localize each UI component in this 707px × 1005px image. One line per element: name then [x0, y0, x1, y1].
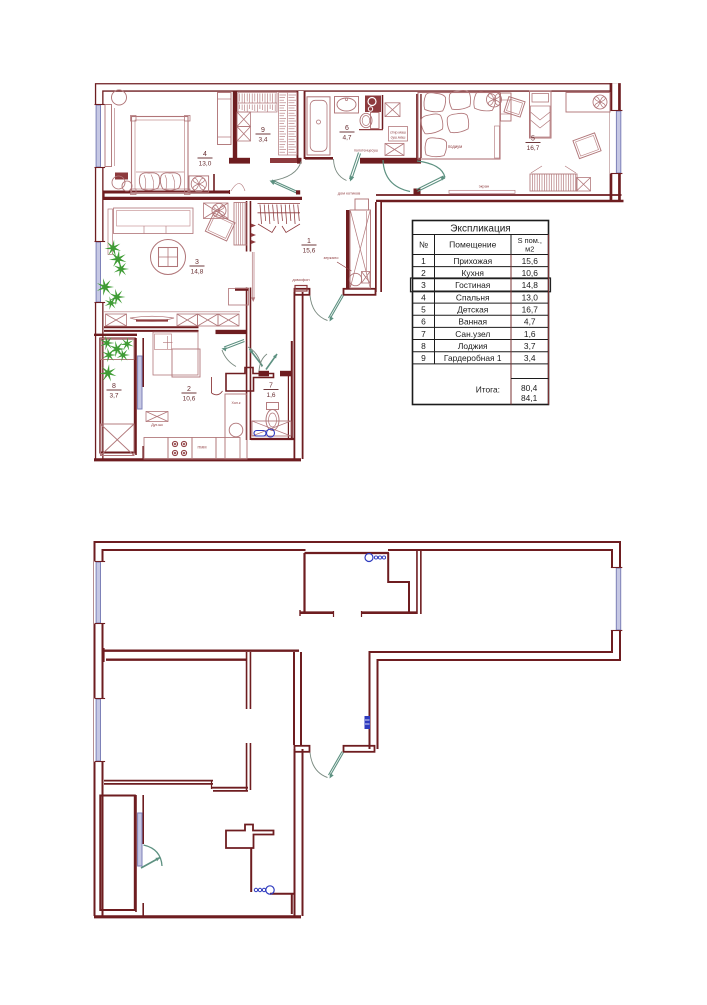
svg-text:Помещение: Помещение [449, 240, 496, 250]
svg-text:10,6: 10,6 [522, 268, 539, 278]
svg-text:10,6: 10,6 [183, 396, 196, 403]
svg-text:стир.маш: стир.маш [390, 130, 406, 134]
svg-text:8: 8 [421, 341, 426, 351]
svg-text:Гардеробная 1: Гардеробная 1 [444, 353, 502, 363]
svg-text:7: 7 [269, 383, 273, 390]
svg-text:1: 1 [421, 256, 426, 266]
svg-text:4: 4 [203, 151, 207, 158]
svg-text:№: № [419, 240, 428, 250]
svg-text:5: 5 [531, 136, 535, 143]
svg-text:80,4: 80,4 [521, 383, 538, 393]
svg-text:3,4: 3,4 [524, 353, 536, 363]
svg-text:84,1: 84,1 [521, 393, 538, 403]
svg-text:Прихожая: Прихожая [453, 256, 492, 266]
svg-text:3: 3 [421, 280, 426, 290]
svg-text:4,7: 4,7 [342, 135, 351, 142]
svg-text:Детская: Детская [457, 305, 488, 315]
svg-text:Лоджия: Лоджия [458, 341, 488, 351]
svg-text:16,7: 16,7 [527, 145, 540, 152]
svg-text:Гостиная: Гостиная [455, 280, 490, 290]
svg-text:Итога:: Итога: [476, 385, 500, 395]
svg-text:1: 1 [307, 238, 311, 245]
svg-text:4: 4 [421, 292, 426, 302]
svg-text:Экспликация: Экспликация [450, 223, 510, 234]
svg-text:Хол.к: Хол.к [232, 401, 241, 405]
svg-text:13,0: 13,0 [199, 161, 212, 168]
svg-text:дом котиков: дом котиков [338, 190, 361, 195]
svg-text:домофон: домофон [292, 277, 309, 282]
svg-text:2: 2 [421, 268, 426, 278]
svg-text:суш.маш: суш.маш [391, 136, 406, 140]
svg-text:полотенцесуш: полотенцесуш [354, 148, 378, 152]
svg-text:6: 6 [345, 125, 349, 132]
svg-text:Дух.шк: Дух.шк [151, 423, 163, 427]
svg-text:9: 9 [421, 353, 426, 363]
svg-text:3,7: 3,7 [524, 341, 536, 351]
svg-text:Кухня: Кухня [462, 268, 484, 278]
svg-text:7: 7 [421, 329, 426, 339]
svg-text:15,6: 15,6 [303, 248, 316, 255]
svg-text:зеркало: зеркало [324, 255, 340, 260]
svg-text:ПММ: ПММ [197, 446, 206, 450]
svg-text:5: 5 [421, 305, 426, 315]
svg-text:13,0: 13,0 [522, 292, 539, 302]
svg-text:8: 8 [112, 383, 116, 390]
svg-text:15,6: 15,6 [522, 256, 539, 266]
svg-text:2: 2 [187, 386, 191, 393]
svg-text:3: 3 [195, 259, 199, 266]
svg-text:14,8: 14,8 [191, 269, 204, 276]
svg-text:1,6: 1,6 [266, 392, 275, 399]
svg-text:Спальня: Спальня [456, 292, 490, 302]
svg-text:1,6: 1,6 [524, 329, 536, 339]
svg-text:подиум: подиум [448, 144, 462, 149]
svg-text:9: 9 [261, 127, 265, 134]
svg-text:16,7: 16,7 [522, 305, 539, 315]
svg-text:3,4: 3,4 [258, 137, 267, 144]
svg-text:м2: м2 [525, 245, 534, 254]
svg-text:14,8: 14,8 [522, 280, 539, 290]
svg-text:Сан.узел: Сан.узел [455, 329, 490, 339]
svg-text:экран: экран [479, 184, 489, 189]
svg-text:Ванная: Ванная [458, 317, 487, 327]
svg-text:3,7: 3,7 [109, 393, 118, 400]
svg-text:6: 6 [421, 317, 426, 327]
svg-text:4,7: 4,7 [524, 317, 536, 327]
